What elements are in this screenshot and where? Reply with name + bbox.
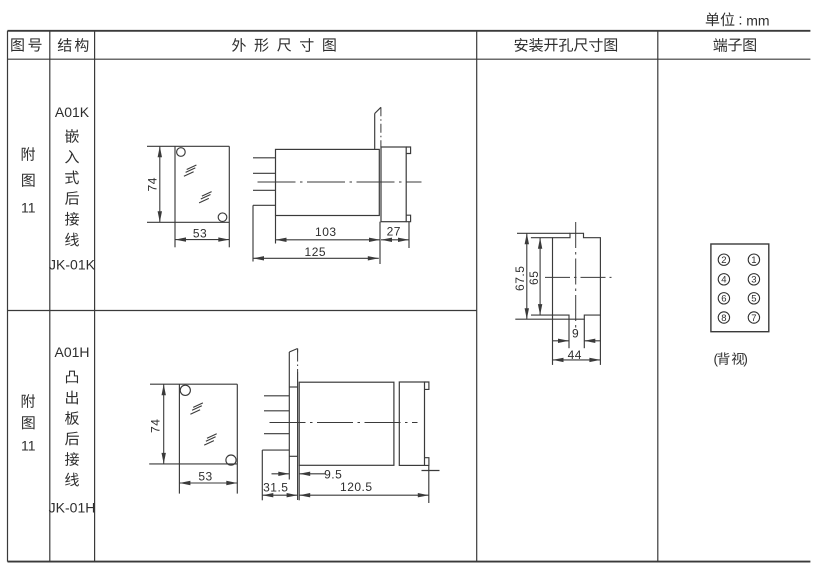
svg-text:74: 74 (146, 177, 160, 191)
svg-text:1: 1 (751, 255, 756, 266)
svg-text:8: 8 (721, 313, 726, 324)
svg-text:120.5: 120.5 (340, 480, 373, 494)
svg-text:53: 53 (193, 226, 207, 240)
svg-text:125: 125 (305, 245, 327, 259)
svg-text:2: 2 (721, 255, 726, 266)
svg-text:9: 9 (572, 327, 579, 341)
svg-text:JK-01H: JK-01H (49, 500, 96, 516)
svg-text:53: 53 (198, 470, 212, 484)
svg-text:67.5: 67.5 (513, 266, 527, 291)
svg-text:A01K: A01K (55, 104, 90, 120)
svg-text:74: 74 (148, 419, 162, 433)
svg-text:3: 3 (751, 275, 756, 286)
svg-text:11: 11 (21, 438, 36, 454)
svg-text:11: 11 (21, 200, 36, 216)
svg-text:4: 4 (721, 275, 726, 286)
svg-text:mm: mm (746, 13, 769, 29)
svg-text:A01H: A01H (54, 344, 89, 360)
svg-text:5: 5 (751, 294, 756, 305)
svg-text:103: 103 (315, 225, 337, 239)
svg-text:7: 7 (751, 313, 756, 324)
svg-text:44: 44 (568, 348, 582, 362)
svg-text::: : (738, 12, 742, 29)
svg-text:6: 6 (721, 294, 726, 305)
svg-text:27: 27 (387, 225, 401, 239)
svg-text:): ) (743, 352, 748, 367)
svg-text:31.5: 31.5 (263, 481, 288, 495)
svg-text:65: 65 (527, 271, 541, 285)
svg-text:(: ( (713, 352, 718, 367)
svg-text:JK-01K: JK-01K (49, 257, 96, 273)
